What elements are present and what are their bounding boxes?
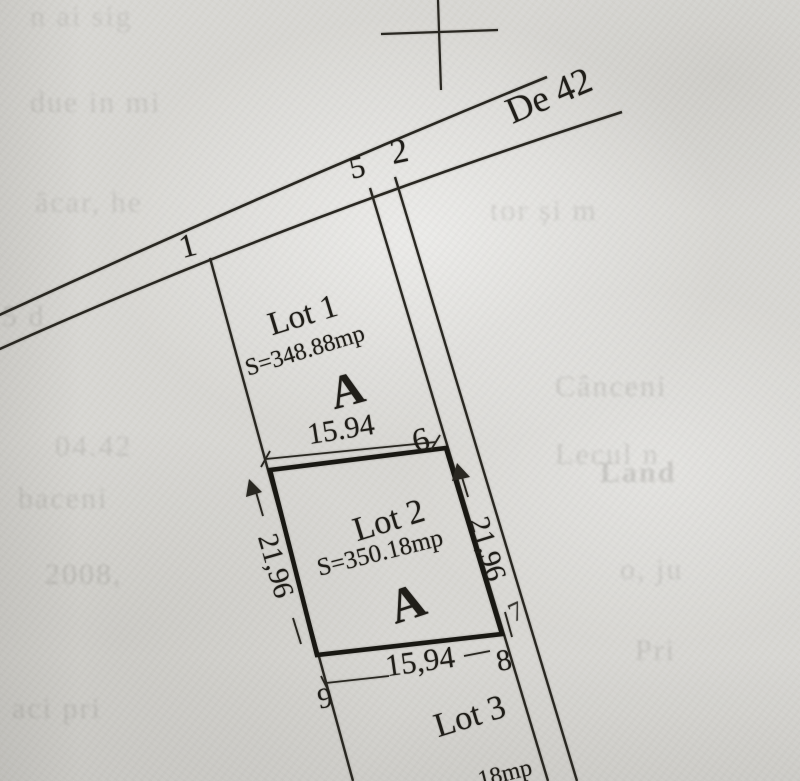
dim-arrow-right-top [452, 463, 470, 481]
dim-line-left-upper [256, 492, 263, 516]
lane-right-line [395, 177, 577, 781]
dim-line-bottom-right [464, 651, 490, 656]
dim-line-left-lower [293, 618, 301, 644]
grid-cross-vertical-arm [438, 0, 441, 90]
dim-line-bottom-left [326, 676, 389, 683]
road-upper-edge [0, 77, 547, 323]
dim-arrow-left-top [246, 479, 262, 497]
scanned-cadastral-plan: n ai sig due in mi ăcar, he tor și m 5 d… [0, 0, 800, 781]
